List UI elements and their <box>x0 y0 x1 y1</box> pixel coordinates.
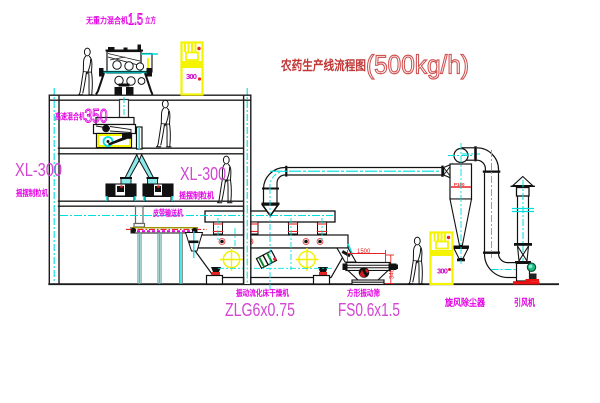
svg-text:XL-300: XL-300 <box>15 160 62 180</box>
svg-text:皮带输送机: 皮带输送机 <box>152 208 183 218</box>
svg-text:300: 300 <box>437 267 448 276</box>
svg-text:摇摆制粒机: 摇摆制粒机 <box>179 191 214 201</box>
svg-text:1.5: 1.5 <box>128 12 143 29</box>
svg-text:旋风除尘器: 旋风除尘器 <box>444 297 485 309</box>
svg-text:FS0.6x1.5: FS0.6x1.5 <box>338 300 400 320</box>
svg-text:(500kg/h): (500kg/h) <box>366 50 469 80</box>
svg-text:1500: 1500 <box>357 249 371 255</box>
svg-text:XL-300: XL-300 <box>180 164 226 184</box>
svg-text:无重力混合机: 无重力混合机 <box>85 16 128 26</box>
svg-text:高速混合机: 高速混合机 <box>55 112 85 122</box>
svg-text:摇摆制粒机: 摇摆制粒机 <box>16 188 48 198</box>
svg-text:P100: P100 <box>454 182 465 187</box>
svg-text:ZLG6x0.75: ZLG6x0.75 <box>225 300 295 320</box>
svg-text:350: 350 <box>85 107 108 128</box>
svg-text:农药生产线流程图: 农药生产线流程图 <box>280 58 366 73</box>
svg-text:振动流化床干燥机: 振动流化床干燥机 <box>236 288 289 298</box>
svg-text:立方: 立方 <box>145 15 156 25</box>
svg-text:方形振动筛: 方形振动筛 <box>347 288 380 298</box>
svg-text:引风机: 引风机 <box>514 297 535 309</box>
svg-text:300: 300 <box>186 72 197 81</box>
